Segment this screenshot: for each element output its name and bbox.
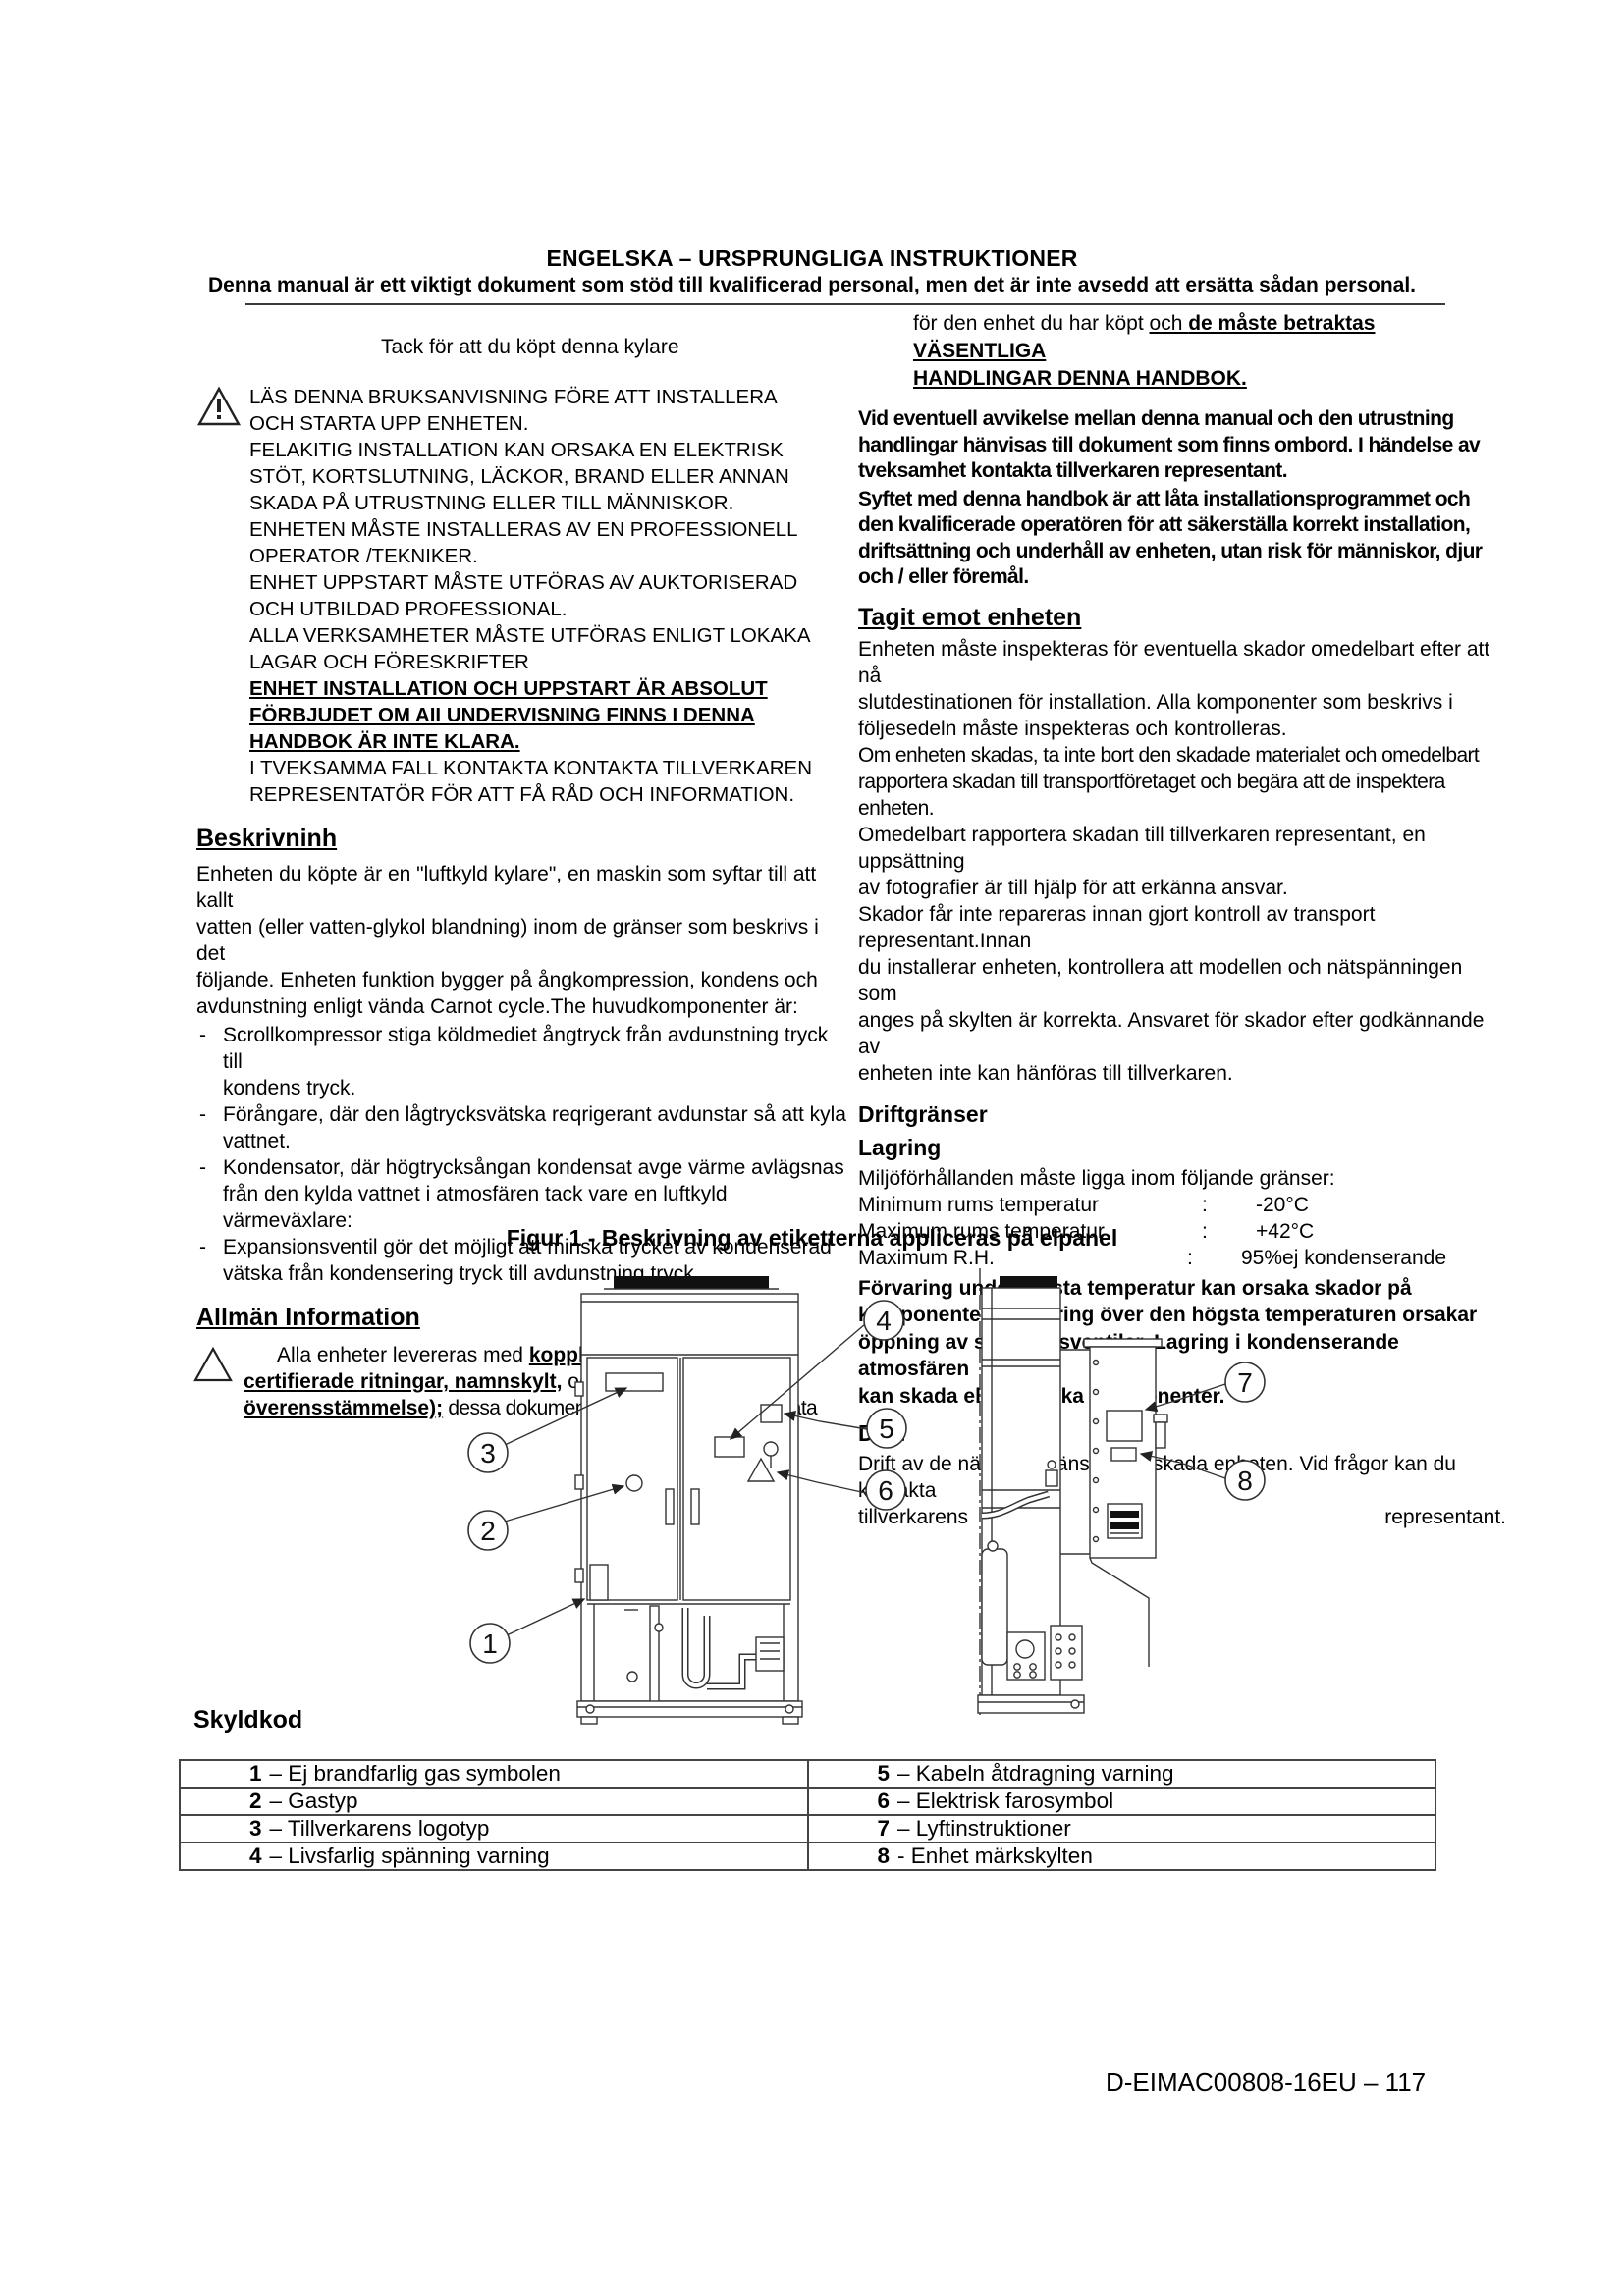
inspection-paragraph: Enheten måste inspekteras för eventuella…	[858, 636, 1506, 742]
front-view-drawing	[575, 1276, 802, 1724]
figure-caption: Figur 1 - Beskrivning av etiketterna app…	[0, 1225, 1624, 1252]
legend-cell: 4– Livsfarlig spänning varning	[180, 1842, 808, 1870]
table-row: 2– Gastyp 6– Elektrisk farosymbol	[180, 1788, 1435, 1815]
document-code: D-EIMAC00808-16EU – 117	[1106, 2067, 1426, 2098]
callout-6: 6	[866, 1470, 905, 1510]
callout-7: 7	[1225, 1362, 1265, 1402]
list-item: - Scrollkompressor stiga köldmediet ångt…	[196, 1022, 852, 1101]
warning-lines-1: LÄS DENNA BRUKSANVISNING FÖRE ATT INSTAL…	[249, 384, 812, 675]
warning-text: LÄS DENNA BRUKSANVISNING FÖRE ATT INSTAL…	[249, 384, 812, 808]
svg-text:6: 6	[878, 1475, 893, 1506]
figure-drawing: 1 2 3 4 5	[432, 1255, 1375, 1737]
storage-intro: Miljöförhållanden måste ligga inom följa…	[858, 1165, 1506, 1192]
purpose-paragraph: Syftet med denna handbok är att låta ins…	[858, 487, 1506, 591]
damage-paragraph: Om enheten skadas, ta inte bort den skad…	[858, 742, 1506, 822]
receiving-heading: Tagit emot enheten	[858, 603, 1506, 632]
limit-row: Minimum rums temperatur : -20°C	[858, 1192, 1506, 1218]
svg-text:8: 8	[1237, 1466, 1253, 1496]
table-row: 4– Livsfarlig spänning varning 8- Enhet …	[180, 1842, 1435, 1870]
svg-text:7: 7	[1237, 1367, 1253, 1398]
callout-2: 2	[468, 1511, 508, 1550]
document-page: ENGELSKA – URSPRUNGLIGA INSTRUKTIONER De…	[0, 0, 1624, 2296]
description-heading: Beskrivninh	[196, 824, 852, 853]
svg-text:4: 4	[876, 1306, 892, 1336]
storage-heading: Lagring	[858, 1134, 1506, 1161]
limit-value: -20°C	[1256, 1192, 1506, 1218]
warning-lines-bold: ENHET INSTALLATION OCH UPPSTART ÄR ABSOL…	[249, 675, 812, 755]
warning-triangle-icon	[196, 384, 249, 808]
page-subtitle: Denna manual är ett viktigt dokument som…	[0, 274, 1624, 297]
legend-table: 1– Ej brandfarlig gas symbolen 5– Kabeln…	[179, 1759, 1436, 1871]
svg-text:5: 5	[879, 1414, 894, 1444]
callout-8: 8	[1225, 1461, 1265, 1500]
svg-text:3: 3	[480, 1438, 496, 1468]
legend-cell: 3– Tillverkarens logotyp	[180, 1815, 808, 1842]
list-item: - Kondensator, där högtrycksångan konden…	[196, 1154, 852, 1234]
page-title: ENGELSKA – URSPRUNGLIGA INSTRUKTIONER	[0, 245, 1624, 272]
legend-cell: 7– Lyftinstruktioner	[808, 1815, 1436, 1842]
side-view-drawing	[978, 1268, 1167, 1716]
operating-limits-heading: Driftgränser	[858, 1100, 1506, 1128]
handbook-paragraph: för den enhet du har köpt och de måste b…	[858, 310, 1506, 393]
header-divider	[245, 303, 1445, 305]
list-item: - Förångare, där den lågtrycksvätska req…	[196, 1101, 852, 1154]
table-row: 3– Tillverkarens logotyp 7– Lyftinstrukt…	[180, 1815, 1435, 1842]
legend-cell: 8- Enhet märkskylten	[808, 1842, 1436, 1870]
svg-text:2: 2	[480, 1516, 496, 1546]
warning-block: LÄS DENNA BRUKSANVISNING FÖRE ATT INSTAL…	[196, 384, 852, 808]
deviation-paragraph: Vid eventuell avvikelse mellan denna man…	[858, 406, 1506, 485]
svg-text:1: 1	[482, 1629, 498, 1659]
triangle-icon	[192, 1342, 244, 1421]
legend-cell: 2– Gastyp	[180, 1788, 808, 1815]
table-row: 1– Ej brandfarlig gas symbolen 5– Kabeln…	[180, 1760, 1435, 1788]
legend-cell: 1– Ej brandfarlig gas symbolen	[180, 1760, 808, 1788]
description-paragraph: Enheten du köpte är en "luftkyld kylare"…	[196, 861, 852, 1020]
legend-cell: 6– Elektrisk farosymbol	[808, 1788, 1436, 1815]
legend-cell: 5– Kabeln åtdragning varning	[808, 1760, 1436, 1788]
callout-4: 4	[864, 1301, 903, 1340]
thanks-line: Tack för att du köpt denna kylare	[381, 334, 852, 360]
callout-1: 1	[470, 1624, 510, 1663]
callout-5: 5	[867, 1409, 906, 1448]
callout-3: 3	[468, 1433, 508, 1472]
warning-lines-2: I TVEKSAMMA FALL KONTAKTA KONTAKTA TILLV…	[249, 755, 812, 808]
legend-heading: Skyldkod	[193, 1706, 302, 1735]
report-paragraph: Omedelbart rapportera skadan till tillve…	[858, 822, 1506, 1087]
